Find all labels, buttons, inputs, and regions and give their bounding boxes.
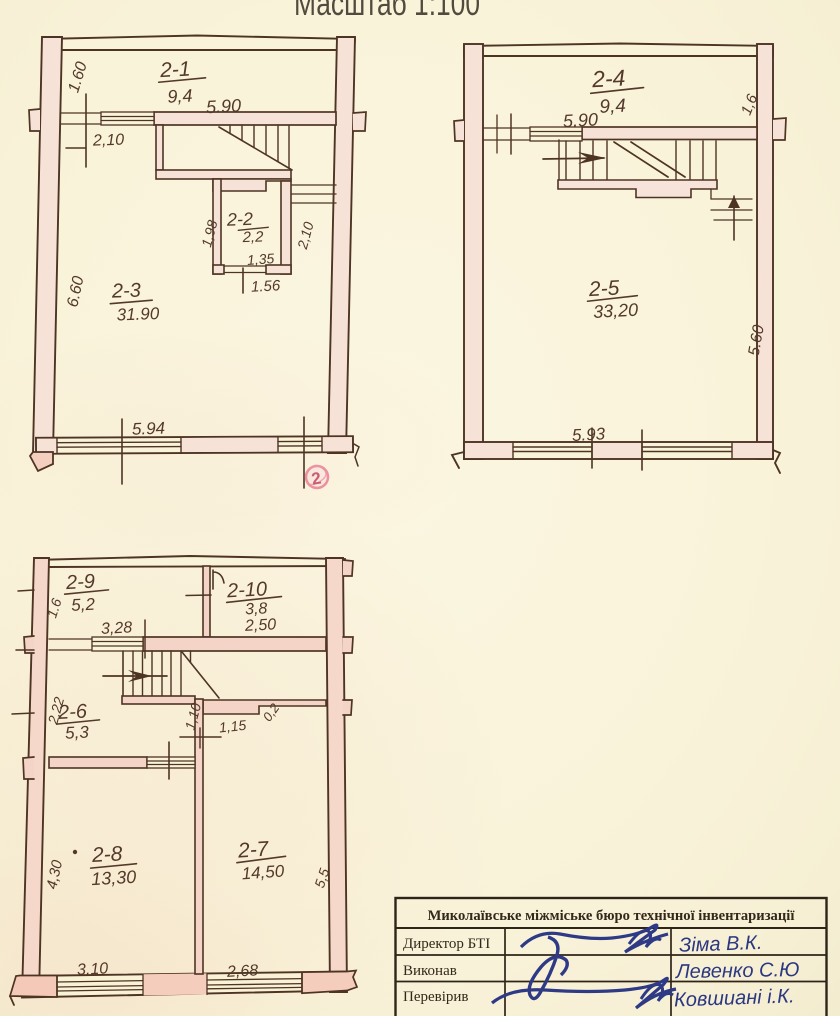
svg-text:9,4: 9,4 [167, 86, 193, 107]
svg-text:Зіма В.К.: Зіма В.К. [679, 932, 763, 957]
svg-text:2-9: 2-9 [65, 571, 96, 595]
svg-text:2-2: 2-2 [226, 209, 254, 230]
svg-text:13,30: 13,30 [91, 867, 137, 889]
svg-text:2,50: 2,50 [244, 616, 277, 635]
svg-text:2-1: 2-1 [159, 58, 192, 83]
svg-text:1.56: 1.56 [251, 277, 282, 296]
svg-text:9,4: 9,4 [599, 96, 626, 118]
svg-text:3,28: 3,28 [101, 619, 133, 638]
svg-text:1,35: 1,35 [246, 250, 275, 268]
svg-text:5.94: 5.94 [132, 419, 166, 439]
svg-text:2-3: 2-3 [110, 280, 141, 303]
svg-text:2-8: 2-8 [90, 842, 123, 867]
svg-text:3,8: 3,8 [245, 600, 268, 618]
svg-text:2,10: 2,10 [92, 132, 125, 150]
svg-text:33,20: 33,20 [593, 300, 639, 322]
svg-text:31.90: 31.90 [116, 304, 160, 324]
svg-text:5.90: 5.90 [562, 109, 598, 131]
svg-text:Перевірив: Перевірив [403, 989, 469, 1005]
svg-text:5.90: 5.90 [206, 95, 242, 117]
svg-text:3.10: 3.10 [77, 960, 109, 979]
svg-text:Масштаб 1:100: Масштаб 1:100 [294, 0, 480, 23]
svg-text:Левенко С.Ю: Левенко С.Ю [674, 959, 800, 983]
svg-text:14,50: 14,50 [241, 861, 285, 883]
svg-text:2,68: 2,68 [226, 962, 259, 981]
svg-text:2,2: 2,2 [241, 228, 264, 246]
svg-text:Директор БТІ: Директор БТІ [403, 936, 490, 952]
svg-text:5,2: 5,2 [71, 595, 96, 615]
svg-text:Виконав: Виконав [403, 963, 457, 979]
svg-text:Ковшиані і.К.: Ковшиані і.К. [674, 985, 795, 1011]
svg-text:2-4: 2-4 [590, 65, 626, 93]
svg-text:Миколаївське міжміське бюро те: Миколаївське міжміське бюро технічної ін… [428, 908, 796, 924]
svg-text:1,15: 1,15 [218, 717, 247, 736]
svg-text:5.93: 5.93 [572, 424, 607, 445]
svg-text:5,3: 5,3 [65, 722, 90, 742]
